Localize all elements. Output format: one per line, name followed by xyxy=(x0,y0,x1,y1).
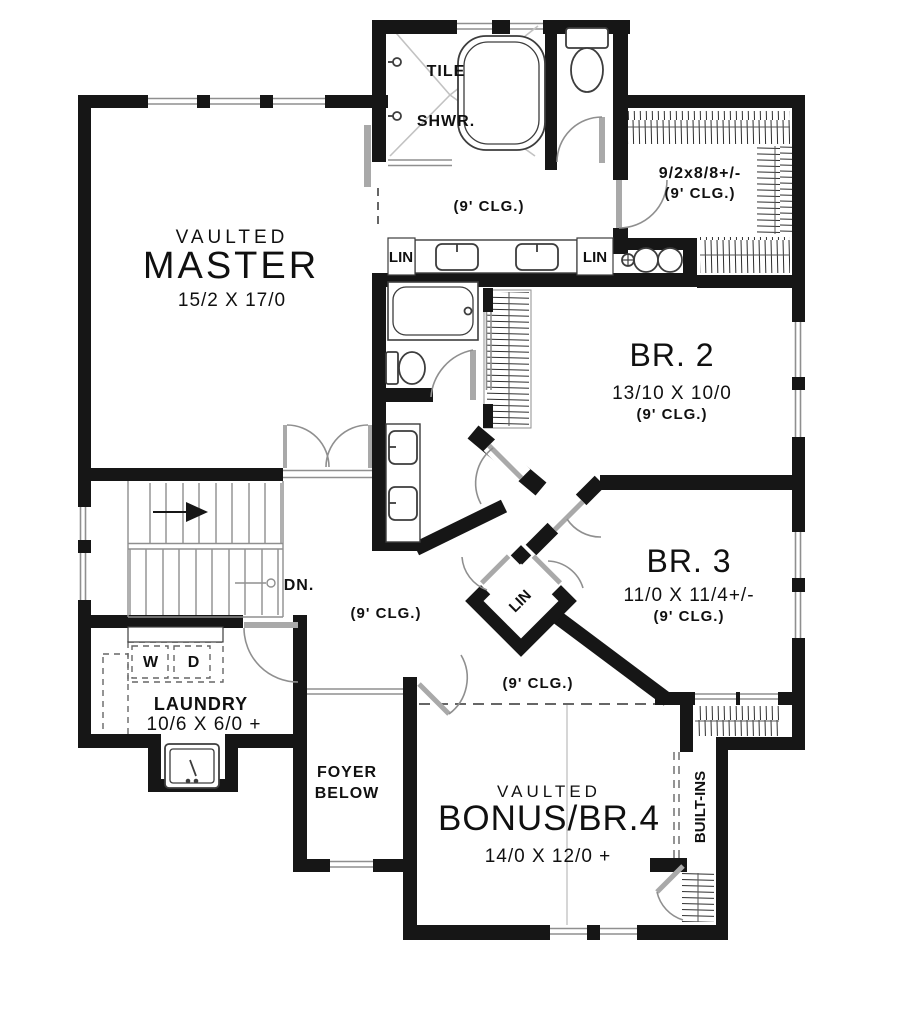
bonus-dims-label: 14/0 X 12/0 + xyxy=(485,846,612,867)
hall-tub-icon xyxy=(388,282,478,340)
laundry-name-label: LAUNDRY xyxy=(154,694,248,714)
br2-clg-label: (9' CLG.) xyxy=(637,406,708,423)
laundry-washer-label: W xyxy=(143,654,159,671)
bonus-name-label: BONUS/BR.4 xyxy=(438,799,660,838)
foyer-line1-label: FOYER xyxy=(317,764,377,781)
br3-clg-label: (9' CLG.) xyxy=(654,608,725,625)
master-name-label: MASTER xyxy=(143,245,319,287)
walkin-closet-clg-label: (9' CLG.) xyxy=(665,185,736,202)
laundry-dryer-label: D xyxy=(188,654,201,671)
laundry-dims-label: 10/6 X 6/0 + xyxy=(147,714,262,735)
master-tub-icon xyxy=(458,36,545,150)
bonus-hall-clg-label: (9' CLG.) xyxy=(503,675,574,692)
shower-shwr-label: SHWR. xyxy=(417,113,475,130)
hall-toilet-icon xyxy=(386,352,425,384)
floor-plan: VAULTED MASTER 15/2 X 17/0 TILE SHWR. (9… xyxy=(0,0,920,1024)
hall-vanity-icon xyxy=(386,424,420,542)
lin-left-label: LIN xyxy=(389,249,413,266)
master-vanity-icon xyxy=(388,238,613,275)
br3-name-label: BR. 3 xyxy=(646,543,731,579)
hall-clg-label: (9' CLG.) xyxy=(351,605,422,622)
builtins-label: BUILT-INS xyxy=(692,771,709,843)
lin-right-label: LIN xyxy=(583,249,607,266)
master-dims-label: 15/2 X 17/0 xyxy=(178,290,286,311)
floor-plan-drawing: VAULTED MASTER 15/2 X 17/0 TILE SHWR. (9… xyxy=(0,0,920,1024)
br3-dims-label: 11/0 X 11/4+/- xyxy=(623,585,754,606)
master-bath-clg-label: (9' CLG.) xyxy=(454,198,525,215)
walkin-closet-dims-label: 9/2x8/8+/- xyxy=(659,165,742,182)
foyer-line2-label: BELOW xyxy=(315,785,380,802)
br2-name-label: BR. 2 xyxy=(629,337,714,373)
stairs-dn-label: DN. xyxy=(284,577,315,594)
shower-tile-label: TILE xyxy=(427,63,466,80)
br2-dims-label: 13/10 X 10/0 xyxy=(612,383,732,404)
